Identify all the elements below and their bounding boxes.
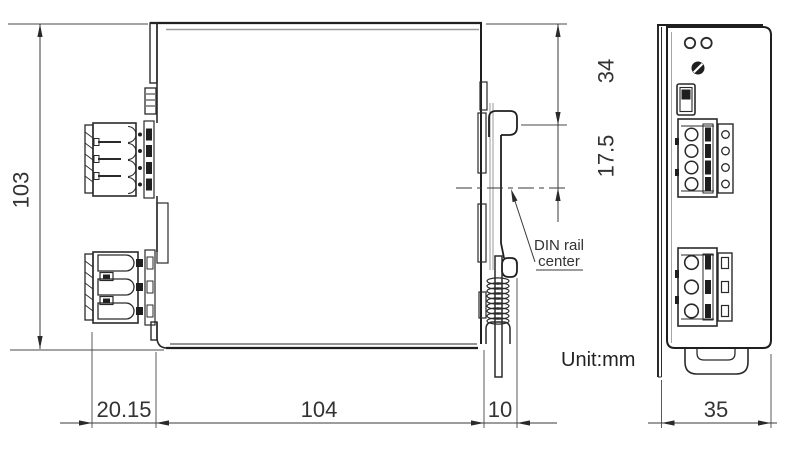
- dimension-drawing-page: DIN rail center 103 34 17.5 20.15 104 10: [0, 0, 791, 453]
- dimension-bottom-row: 20.15 104 10: [60, 278, 557, 428]
- terminal-block-upper: [675, 119, 733, 197]
- led-indicators: [685, 38, 712, 48]
- front-view: [657, 25, 771, 377]
- dim-label-overall-height: 103: [9, 172, 34, 209]
- power-switch: [677, 84, 695, 115]
- led-indicator-left: [685, 38, 695, 48]
- dim-label-connector-depth: 20.15: [96, 397, 151, 422]
- led-indicator-right: [701, 38, 711, 48]
- device-body-outline: [150, 23, 487, 348]
- terminal-block-lower: [675, 248, 732, 326]
- adjustment-potentiometer: [692, 62, 705, 75]
- dim-label-rail-top-offset: 34: [594, 59, 619, 83]
- din-rail-center-label-line2: center: [538, 253, 580, 270]
- side-lock-tab: [145, 88, 156, 114]
- din-rail-center-annotation: DIN rail center: [456, 188, 584, 270]
- dimension-rail-top-offset: 34: [486, 24, 619, 125]
- dim-label-front-width: 35: [704, 397, 728, 422]
- terminal-connector-top: [85, 121, 154, 198]
- side-view: DIN rail center: [85, 23, 584, 377]
- din-rail-clip: [486, 256, 510, 377]
- unit-label: Unit:mm: [561, 349, 635, 371]
- terminal-connector-bottom: [85, 250, 155, 325]
- front-body-outline: [657, 25, 771, 377]
- dimension-overall-height: 103: [8, 24, 164, 350]
- dim-label-rail-clearance: 10: [488, 397, 512, 422]
- dim-label-rail-center-offset: 17.5: [594, 135, 619, 178]
- dimension-rail-center-offset: 17.5: [555, 125, 618, 222]
- clip-spring: [487, 278, 509, 324]
- technical-drawing-canvas: DIN rail center 103 34 17.5 20.15 104 10: [0, 0, 791, 453]
- dimension-front-width: 35: [648, 354, 777, 428]
- din-rail: [489, 103, 517, 277]
- dim-label-body-depth: 104: [301, 397, 338, 422]
- din-rail-center-label-line1: DIN rail: [534, 237, 584, 254]
- din-clip-tab: [685, 349, 748, 374]
